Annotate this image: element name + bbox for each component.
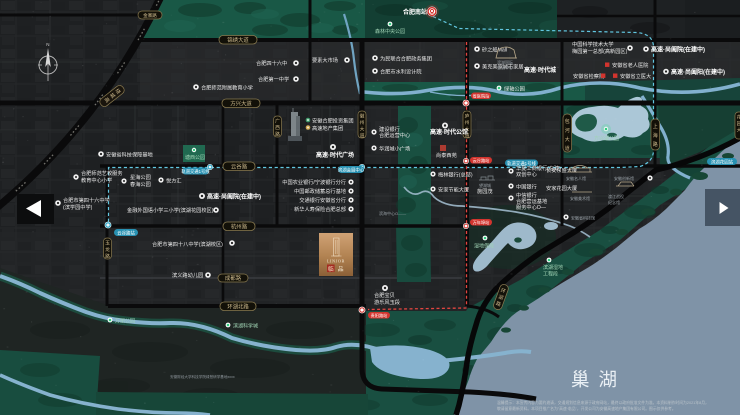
svg-text:园: 园 bbox=[737, 121, 740, 127]
svg-text:中国银行: 中国银行 bbox=[516, 183, 537, 191]
svg-text:高速·时代城: 高速·时代城 bbox=[524, 66, 556, 74]
svg-text:望湖城: 望湖城 bbox=[479, 182, 491, 188]
svg-text:悦方汇: 悦方汇 bbox=[166, 177, 182, 185]
svg-text:贵阳路站: 贵阳路站 bbox=[371, 312, 388, 319]
svg-text:森林中央公园: 森林中央公园 bbox=[375, 28, 405, 35]
svg-text:砂之船Mall: 砂之船Mall bbox=[482, 46, 507, 54]
svg-text:大: 大 bbox=[565, 136, 570, 143]
svg-text:长安东盛大厦: 长安东盛大厦 bbox=[546, 166, 577, 174]
svg-text:合肥市水利设计院: 合肥市水利设计院 bbox=[380, 68, 422, 76]
svg-text:高速·尚阖院(在建中): 高速·尚阖院(在建中) bbox=[651, 46, 705, 54]
svg-text:广: 广 bbox=[275, 118, 280, 125]
svg-text:杭州路: 杭州路 bbox=[231, 223, 248, 231]
svg-text:为民联合合肥政务集团: 为民联合合肥政务集团 bbox=[380, 55, 432, 63]
svg-text:省医院站: 省医院站 bbox=[473, 93, 490, 100]
svg-text:合肥师范附属教育小学: 合肥师范附属教育小学 bbox=[201, 84, 253, 92]
svg-text:中国农业银行/宁波银行分行: 中国农业银行/宁波银行分行 bbox=[282, 178, 346, 186]
svg-text:锦绣大道: 锦绣大道 bbox=[227, 36, 249, 44]
svg-text:合肥营运基地: 合肥营运基地 bbox=[516, 197, 547, 205]
svg-text:梅园第一总部(高新园区): 梅园第一总部(高新园区) bbox=[572, 47, 628, 55]
svg-text:星海公园: 星海公园 bbox=[130, 173, 151, 181]
svg-text:金寨路: 金寨路 bbox=[143, 12, 157, 19]
svg-text:滨湖湿地: 滨湖湿地 bbox=[543, 264, 563, 271]
svg-text:安徽省老人医院: 安徽省老人医院 bbox=[612, 61, 649, 69]
svg-text:云谷路站: 云谷路站 bbox=[473, 157, 490, 164]
svg-text:湿地保段: 湿地保段 bbox=[474, 243, 494, 250]
svg-text:方兴湖公园: 方兴湖公园 bbox=[594, 135, 619, 142]
svg-text:安徽财经大学科技学院绿慧研学基地xxxx: 安徽财经大学科技学院绿慧研学基地xxxx bbox=[170, 374, 235, 379]
svg-text:滨海中心O——: 滨海中心O—— bbox=[379, 210, 406, 216]
svg-text:万丽公园: 万丽公园 bbox=[115, 319, 135, 325]
svg-text:道: 道 bbox=[360, 132, 365, 139]
svg-text:安家花园大厦: 安家花园大厦 bbox=[546, 184, 577, 192]
svg-text:高速·时代广场: 高速·时代广场 bbox=[316, 151, 354, 159]
svg-text:临: 临 bbox=[328, 265, 334, 273]
svg-text:服务中心O—: 服务中心O— bbox=[516, 203, 547, 211]
svg-text:品: 品 bbox=[338, 266, 344, 273]
svg-text:高速·尚阖院(在建中): 高速·尚阖院(在建中) bbox=[207, 193, 261, 201]
svg-text:成都路: 成都路 bbox=[225, 274, 242, 282]
svg-text:安徽省科技保障基地: 安徽省科技保障基地 bbox=[106, 151, 153, 159]
svg-text:安家节能大厦: 安家节能大厦 bbox=[438, 186, 469, 194]
svg-text:花: 花 bbox=[737, 114, 740, 121]
svg-text:中信银行: 中信银行 bbox=[516, 191, 537, 199]
svg-text:合肥市第四十八中学(滨湖校区): 合肥市第四十八中学(滨湖校区) bbox=[152, 240, 223, 248]
svg-text:(滨学园中学): (滨学园中学) bbox=[63, 203, 93, 211]
svg-text:安徽美术馆: 安徽美术馆 bbox=[570, 195, 590, 201]
svg-text:西: 西 bbox=[275, 125, 280, 131]
svg-text:安徽名人馆: 安徽名人馆 bbox=[566, 175, 586, 181]
svg-text:合肥运营中心: 合肥运营中心 bbox=[379, 131, 410, 139]
svg-text:包: 包 bbox=[565, 118, 570, 125]
svg-text:巢湖: 巢湖 bbox=[571, 369, 626, 390]
svg-text:龙: 龙 bbox=[105, 246, 110, 253]
svg-text:LINJOR: LINJOR bbox=[327, 259, 345, 264]
svg-text:游乐风玉段: 游乐风玉段 bbox=[374, 298, 400, 306]
svg-text:庐: 庐 bbox=[465, 113, 470, 120]
svg-text:滨湖花园站: 滨湖花园站 bbox=[711, 158, 734, 165]
svg-text:云谷路站: 云谷路站 bbox=[117, 229, 135, 236]
svg-text:梅林银行(总部): 梅林银行(总部) bbox=[438, 171, 473, 179]
svg-text:安徽创新馆: 安徽创新馆 bbox=[614, 175, 634, 181]
svg-text:高速·时代公馆: 高速·时代公馆 bbox=[430, 128, 468, 136]
svg-text:合肥市第四十六中学: 合肥市第四十六中学 bbox=[63, 196, 110, 204]
svg-text:路: 路 bbox=[653, 141, 658, 148]
svg-text:万年埠站: 万年埠站 bbox=[473, 219, 490, 226]
svg-text:轨道交通1号线: 轨道交通1号线 bbox=[181, 168, 210, 175]
svg-text:安徽合肥投资集团: 安徽合肥投资集团 bbox=[312, 117, 354, 125]
svg-text:云谷路: 云谷路 bbox=[231, 163, 248, 171]
svg-text:金融外国语小学三小学(滨湖花园校区): 金融外国语小学三小学(滨湖花园校区) bbox=[127, 206, 214, 214]
svg-text:合肥师范艺校服务: 合肥师范艺校服务 bbox=[81, 169, 123, 177]
svg-text:合肥四十六中: 合肥四十六中 bbox=[256, 59, 287, 67]
svg-text:敬请留意最新资料。本项目推广名为"高速·临品"，开发公司为安: 敬请留意最新资料。本项目推广名为"高速·临品"，开发公司为安徽高速地产集团有限公… bbox=[497, 406, 676, 411]
svg-text:建设银行: 建设银行 bbox=[379, 125, 400, 133]
svg-text:华润城小广场: 华润城小广场 bbox=[379, 145, 410, 153]
svg-text:春海公园: 春海公园 bbox=[130, 180, 151, 188]
svg-text:徽: 徽 bbox=[360, 113, 365, 120]
svg-text:合肥南站: 合肥南站 bbox=[403, 8, 427, 16]
svg-text:要素大市场: 要素大市场 bbox=[312, 56, 338, 64]
svg-text:环湖北路: 环湖北路 bbox=[227, 303, 249, 311]
svg-text:合肥宝贝: 合肥宝贝 bbox=[374, 291, 395, 299]
svg-text:州: 州 bbox=[465, 120, 470, 126]
svg-text:温馨提示：本宣传内容为要约邀请，交通规划信息来源于政府网站，: 温馨提示：本宣传内容为要约邀请，交通规划信息来源于政府网站，最终以政府批准文件为… bbox=[497, 400, 709, 405]
svg-text:滨湖科学城: 滨湖科学城 bbox=[233, 323, 258, 330]
svg-text:上: 上 bbox=[653, 123, 658, 130]
svg-text:合肥第一中学: 合肥第一中学 bbox=[258, 75, 289, 83]
svg-text:渡江战役: 渡江战役 bbox=[608, 193, 624, 199]
svg-text:路: 路 bbox=[275, 131, 280, 138]
svg-text:纪念馆: 纪念馆 bbox=[608, 199, 620, 205]
svg-text:安徽省检察院: 安徽省检察院 bbox=[573, 72, 605, 80]
svg-text:工程段: 工程段 bbox=[543, 271, 558, 278]
svg-text:高速地产集团: 高速地产集团 bbox=[312, 124, 343, 132]
svg-text:施园茂: 施园茂 bbox=[477, 187, 493, 195]
svg-text:教育中心小学: 教育中心小学 bbox=[81, 176, 112, 184]
svg-text:塘西公园: 塘西公园 bbox=[185, 154, 205, 161]
svg-text:安徽省科技馆: 安徽省科技馆 bbox=[571, 215, 595, 221]
svg-text:滨义路幼儿园: 滨义路幼儿园 bbox=[172, 271, 203, 279]
svg-text:安徽省立医大: 安徽省立医大 bbox=[620, 72, 651, 80]
svg-text:中国邮政储蓄总行基地: 中国邮政储蓄总行基地 bbox=[294, 187, 346, 195]
svg-text:方兴大道: 方兴大道 bbox=[230, 100, 252, 108]
svg-text:道: 道 bbox=[565, 145, 570, 152]
svg-text:滨湖会展中心: 滨湖会展中心 bbox=[338, 166, 365, 173]
svg-text:绿轴公园: 绿轴公园 bbox=[504, 85, 525, 93]
svg-text:大: 大 bbox=[737, 127, 740, 134]
svg-text:河: 河 bbox=[565, 127, 570, 134]
svg-text:州: 州 bbox=[360, 120, 365, 126]
svg-text:路: 路 bbox=[105, 253, 110, 260]
svg-text:N: N bbox=[46, 42, 49, 47]
svg-text:会展中心: 会展中心 bbox=[497, 64, 513, 70]
svg-text:中国科学技术大学: 中国科学技术大学 bbox=[572, 40, 614, 48]
svg-text:双创中心: 双创中心 bbox=[516, 170, 537, 178]
svg-text:海: 海 bbox=[653, 132, 658, 139]
svg-text:交通银行安徽省分行: 交通银行安徽省分行 bbox=[299, 196, 346, 204]
svg-text:高速·尚阖阳(在建中): 高速·尚阖阳(在建中) bbox=[671, 68, 725, 76]
svg-text:新华人寿保险合肥总部: 新华人寿保险合肥总部 bbox=[294, 205, 346, 213]
svg-text:尚泰西苑: 尚泰西苑 bbox=[436, 151, 457, 159]
svg-text:大: 大 bbox=[360, 126, 365, 133]
svg-text:玉: 玉 bbox=[105, 241, 110, 247]
